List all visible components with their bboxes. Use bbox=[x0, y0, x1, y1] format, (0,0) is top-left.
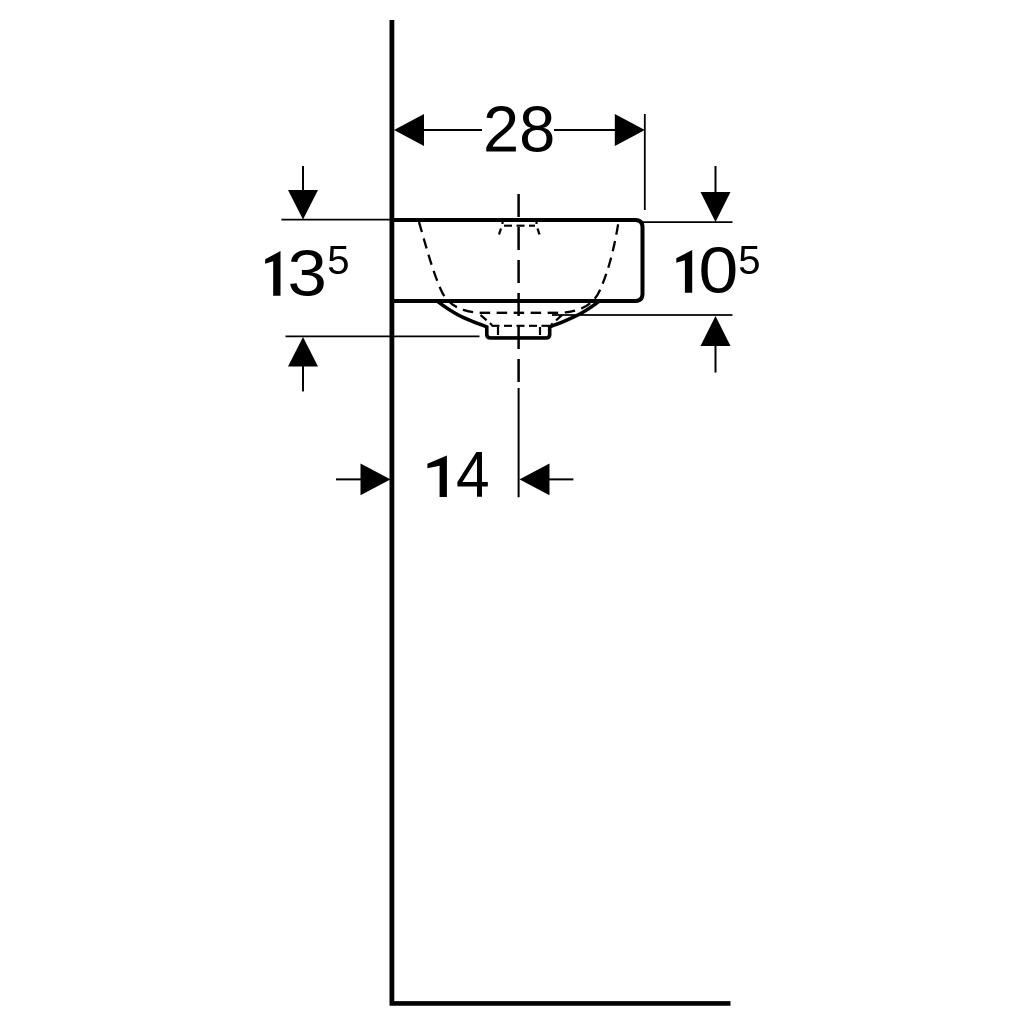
svg-text:5: 5 bbox=[327, 239, 349, 283]
svg-text:0: 0 bbox=[699, 234, 739, 306]
svg-text:5: 5 bbox=[738, 238, 760, 282]
svg-text:28: 28 bbox=[483, 93, 555, 166]
svg-text:3: 3 bbox=[288, 237, 327, 310]
svg-text:4: 4 bbox=[456, 439, 490, 511]
